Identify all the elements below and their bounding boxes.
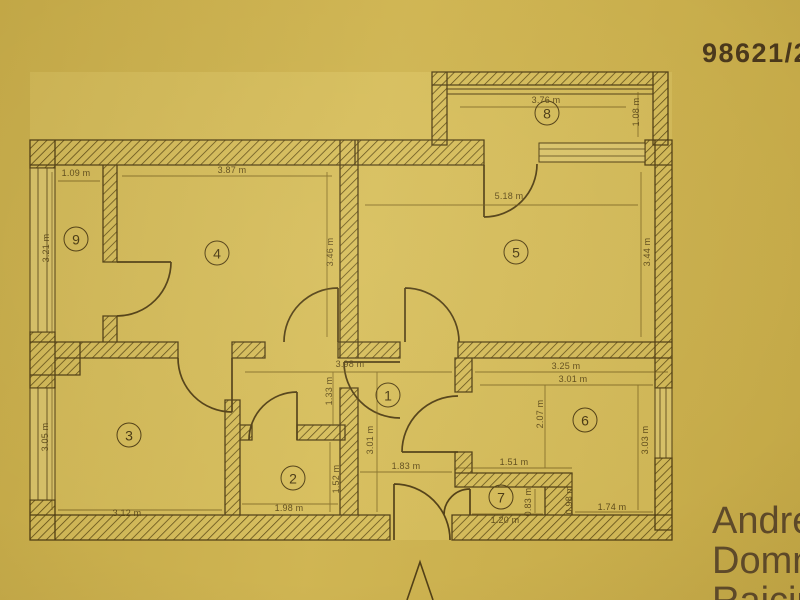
dim-room3-width: 3.12 m (113, 508, 142, 518)
dim-hall-height-upper: 1.33 m (324, 377, 334, 406)
dim-room9-height: 3.21 m (41, 234, 51, 263)
dim-room7-width-top: 1.51 m (500, 457, 529, 467)
dim-room3-height: 3.05 m (40, 423, 50, 452)
dim-room7-width-bottom: 1.20 m (491, 515, 520, 525)
dim-room6-width-bottom: 1.74 m (598, 502, 627, 512)
room-number-8: 8 (535, 101, 560, 126)
room-number-5: 5 (504, 240, 529, 265)
dim-hall-width-bottom: 1.83 m (392, 461, 421, 471)
room-number-2: 2 (281, 466, 306, 491)
name-line-1: Andre (712, 502, 800, 540)
dim-room5-width: 5.18 m (495, 191, 524, 201)
dim-room4-width: 3.87 m (218, 165, 247, 175)
dim-hall-height-lower: 3.01 m (365, 426, 375, 455)
dim-hall-width-top: 3.98 m (336, 359, 365, 369)
window-room5-balcony (539, 143, 645, 162)
room-number-1: 1 (376, 383, 401, 408)
room-number-6: 6 (573, 408, 598, 433)
dim-room9-width: 1.09 m (62, 168, 91, 178)
room-number-4: 4 (205, 241, 230, 266)
dim-room2-width: 1.98 m (275, 503, 304, 513)
dim-room6-step-height: 0.98 m (564, 486, 574, 515)
dim-room6-height-right: 3.03 m (640, 426, 650, 455)
floor-plan-photo: 3.87 m 3.46 m 1.09 m 3.21 m 3.76 m 1.08 … (0, 0, 800, 600)
dim-room6-width-inner: 3.01 m (559, 374, 588, 384)
dim-room8-depth: 1.08 m (631, 98, 641, 127)
document-number: 98621/20 (702, 38, 800, 69)
name-line-3: Raiciu (712, 582, 800, 600)
room-number-3: 3 (117, 423, 142, 448)
dim-room2-height: 1.52 m (331, 465, 341, 494)
dim-room6-width-outer: 3.25 m (552, 361, 581, 371)
window-room6-right (655, 388, 672, 458)
dim-room7-height: 0.83 m (523, 488, 533, 517)
room-number-7: 7 (489, 485, 514, 510)
dim-room4-height: 3.46 m (325, 238, 335, 267)
dim-room6-height-left: 2.07 m (535, 400, 545, 429)
name-line-2: Domn (712, 542, 800, 580)
dim-room5-height: 3.44 m (642, 238, 652, 267)
north-arrow-icon (407, 562, 433, 600)
room-number-9: 9 (64, 227, 89, 252)
